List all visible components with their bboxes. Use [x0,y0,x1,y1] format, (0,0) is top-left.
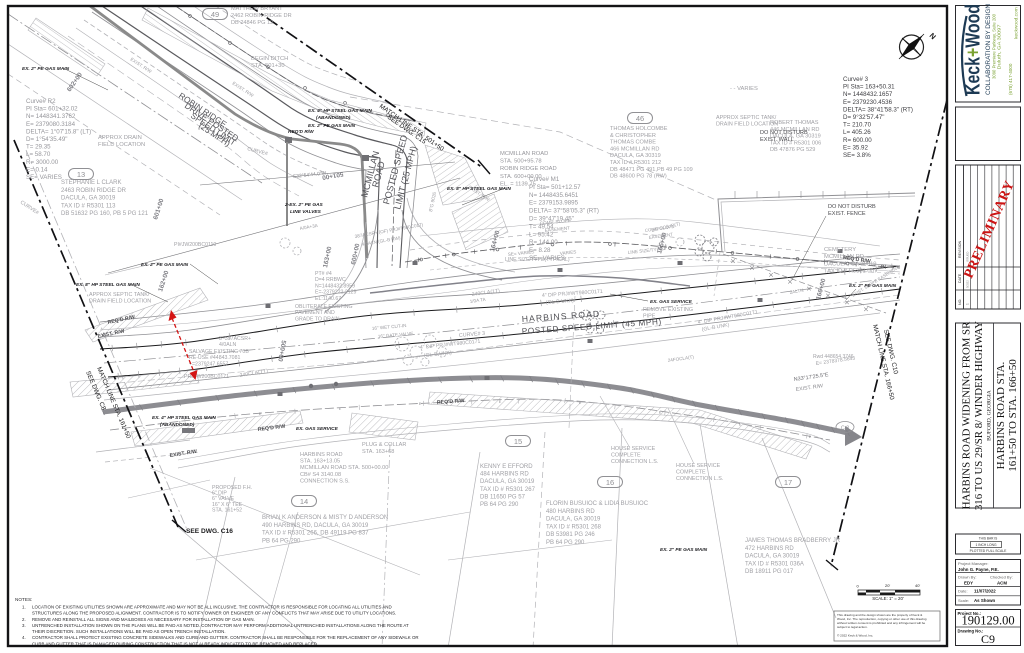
svg-text:STA. 600+00.00: STA. 600+00.00 [500,174,542,180]
svg-text:CEMETERY: CEMETERY [824,247,856,253]
svg-text:APPROX DRAIN: APPROX DRAIN [98,135,142,141]
svg-text:REMOVE EXISTING: REMOVE EXISTING [643,307,693,313]
svg-text:Duluth, GA 30097: Duluth, GA 30097 [997,24,1002,70]
svg-text:HOUSE SERVICE: HOUSE SERVICE [611,446,656,452]
svg-text:11/07/2022: 11/07/2022 [974,589,996,594]
svg-text:+=2379247.6557: +=2379247.6557 [189,361,228,367]
svg-text:TAX ID # R5301 266, DB 49119 P: TAX ID # R5301 266, DB 49119 PG 837 [262,531,369,537]
svg-text:PB 64 PG 290: PB 64 PG 290 [546,540,585,546]
svg-text:4.: 4. [22,635,26,640]
svg-text:Drawing No.:: Drawing No.: [958,629,984,634]
svg-text:14: 14 [300,497,308,506]
svg-text:STRUCTURES ALONG THE PROPOSED: STRUCTURES ALONG THE PROPOSED ALIGNMENT.… [32,611,396,616]
svg-text:DACULA, GA 30019: DACULA, GA 30019 [745,554,800,560]
svg-text:2.: 2. [22,617,26,622]
svg-text:EX. GAS SERVICE: EX. GAS SERVICE [296,426,339,432]
svg-text:ROBERT THOMAS: ROBERT THOMAS [770,120,819,126]
svg-text:TAX ID # R5301 268: TAX ID # R5301 268 [546,524,602,530]
svg-text:40': 40' [915,583,920,588]
svg-text:© 2022 Keck & Wood, Inc.: © 2022 Keck & Wood, Inc. [837,634,873,638]
svg-text:CONNECTION L.S.: CONNECTION L.S. [611,459,658,465]
svg-text:L= 95.42: L= 95.42 [529,231,554,238]
svg-text:APPROX SEPTIC TANK/: APPROX SEPTIC TANK/ [716,115,777,121]
svg-text:484 HARBINS RD: 484 HARBINS RD [480,472,529,478]
svg-text:EX. 2" PE GAS MAIN: EX. 2" PE GAS MAIN [849,283,897,289]
svg-text:R= 144.00: R= 144.00 [529,239,558,246]
svg-text:PT# #4: PT# #4 [315,271,332,277]
svg-text:PI#JW200BC0110: PI#JW200BC0110 [174,242,216,248]
svg-text:(ABANDONED): (ABANDONED) [160,422,195,428]
svg-text:THEIR DISCRETION. SUCH INSTALL: THEIR DISCRETION. SUCH INSTALLATIONS WIL… [32,629,226,634]
svg-text:3.: 3. [22,623,26,628]
svg-text:DO NOT DISTURB: DO NOT DISTURB [828,204,876,210]
svg-text:REMOVE AND REINSTALL ALL SIGNS: REMOVE AND REINSTALL ALL SIGNS AND MAILB… [32,617,255,622]
svg-text:TAX ID # R5301 212: TAX ID # R5301 212 [610,160,661,166]
svg-text:Drawn By:: Drawn By: [958,575,976,580]
svg-text:EX. 8" HP STEEL GAS MAIN: EX. 8" HP STEEL GAS MAIN [447,186,511,192]
svg-text:Curve# R2: Curve# R2 [26,98,56,105]
svg-text:472 HARBINS RD: 472 HARBINS RD [745,546,794,552]
svg-text:REVISION: REVISION [958,240,962,258]
svg-text:RE-USE #44843.7081: RE-USE #44843.7081 [189,355,240,361]
svg-text:(678) 417-4000: (678) 417-4000 [1008,63,1013,95]
svg-text:KENNY E EFFORD: KENNY E EFFORD [480,464,533,470]
svg-text:subject to legal action.: subject to legal action. [837,625,868,629]
svg-text:THIS BAR IS: THIS BAR IS [979,537,998,541]
svg-text:E= 2379230.4536: E= 2379230.4536 [843,99,893,106]
svg-text:As Shown: As Shown [974,598,996,603]
svg-text:SE= 3.8%: SE= 3.8% [843,152,871,159]
svg-text:2-EX. 2" PE GAS: 2-EX. 2" PE GAS [284,202,324,208]
svg-text:PI Sta= 501+12.57: PI Sta= 501+12.57 [529,184,581,191]
svg-text:EX. 4" HP STEEL GAS MAIN: EX. 4" HP STEEL GAS MAIN [152,415,216,421]
svg-text:(ABANDONED): (ABANDONED) [316,115,351,121]
svg-text:STA. 501+30: STA. 501+30 [251,63,285,69]
svg-text:DACULA, GA 30019: DACULA, GA 30019 [61,196,116,202]
svg-text:E= 35.92: E= 35.92 [843,144,869,151]
svg-text:John G. Payne, P.E.: John G. Payne, P.E. [958,567,999,572]
svg-text:49: 49 [211,10,219,19]
svg-text:STA. 163+13.05: STA. 163+13.05 [300,459,340,465]
svg-text:STA. 500+95.78: STA. 500+95.78 [500,159,542,165]
svg-text:TAX ID # R5301 036A: TAX ID # R5301 036A [745,561,804,567]
svg-text:EDY: EDY [964,581,973,586]
svg-text:DELTA= 1°07'15.8" (LT): DELTA= 1°07'15.8" (LT) [26,128,91,135]
svg-text:BEGIN DITCH: BEGIN DITCH [251,56,288,62]
svg-text:D= 9°32'57.47": D= 9°32'57.47" [843,114,884,121]
svg-text:CONNECTION L.S.: CONNECTION L.S. [676,476,723,482]
svg-text:THOMAS COMBE: THOMAS COMBE [610,140,656,146]
svg-text:FLORIN BUSUIOC & LIDIA BUSUIOC: FLORIN BUSUIOC & LIDIA BUSUIOC [546,501,649,507]
svg-text:EL:1140.67: EL:1140.67 [315,296,341,302]
svg-text:OBLITERATE EXISTING: OBLITERATE EXISTING [295,304,353,310]
svg-text:D= 1°54'35.49": D= 1°54'35.49" [26,136,67,143]
svg-text:LINE SIZE/TYPE(TYPICAL): LINE SIZE/TYPE(TYPICAL) [505,257,570,263]
svg-text:DELTA= 38°41'58.3" (RT): DELTA= 38°41'58.3" (RT) [843,106,913,113]
svg-text:EXIST. WALL: EXIST. WALL [760,137,794,143]
svg-text:BRIAN K ANDERSON & MISTY D AND: BRIAN K ANDERSON & MISTY D ANDERSON [262,515,388,521]
svg-text:D=4 RRBWC: D=4 RRBWC [315,277,346,283]
svg-text:CB# S4 3140.08: CB# S4 3140.08 [300,472,341,478]
svg-text:STEPHANIE L CLARK: STEPHANIE L CLARK [61,180,121,186]
svg-text:CONNECTION S.S.: CONNECTION S.S. [300,478,350,484]
svg-text:L= 58.70: L= 58.70 [26,151,51,158]
svg-text:PIPE: PIPE [643,314,656,320]
svg-text:SALVAGE EXISTING 70B: SALVAGE EXISTING 70B [189,349,249,355]
svg-text:EX. GAS SERVICE: EX. GAS SERVICE [650,299,693,305]
svg-text:HARBINS ROAD: HARBINS ROAD [300,452,343,458]
svg-text:N= 1448432.1657: N= 1448432.1657 [843,91,893,98]
svg-text:Date:: Date: [958,589,968,594]
svg-text:1 INCH LONG: 1 INCH LONG [975,543,997,547]
svg-text:R= 600.00: R= 600.00 [843,137,872,144]
svg-text:E: E [419,402,422,406]
svg-text:E= 2379080.3184: E= 2379080.3184 [26,121,76,128]
svg-text:PRJ#W200BC0171: PRJ#W200BC0171 [184,374,229,380]
svg-text:FIELD LOCATION: FIELD LOCATION [98,142,145,148]
svg-text:Curve# 3: Curve# 3 [843,76,869,83]
svg-text:480 HARBINS RD: 480 HARBINS RD [546,509,595,515]
svg-text:DRAIN FIELD LOCATION: DRAIN FIELD LOCATION [716,122,778,128]
svg-text:PB 64 PG 290: PB 64 PG 290 [480,502,519,508]
svg-text:STA. 163+68: STA. 163+68 [362,449,394,455]
svg-text:4/0ALN: 4/0ALN [219,342,237,348]
svg-text:3~397ACSR+: 3~397ACSR+ [219,336,251,342]
svg-text:STA. 161+52: STA. 161+52 [212,507,242,513]
svg-text:LINE VALVES: LINE VALVES [290,209,322,215]
svg-text:DB 47876 PG 529: DB 47876 PG 529 [770,147,815,153]
svg-text:T= 210.70: T= 210.70 [843,122,872,129]
svg-text:13: 13 [77,170,85,179]
svg-text:5/2/22: 5/2/22 [966,280,970,288]
svg-text:keckwood.com: keckwood.com [1014,7,1020,39]
svg-text:PI Sta= 601+32.02: PI Sta= 601+32.02 [26,106,78,113]
svg-text:N=1448432.8959: N=1448432.8959 [315,283,355,289]
svg-text:C-8: C-8 [841,426,849,432]
svg-text:N= 1448341.3762: N= 1448341.3762 [26,113,76,120]
svg-text:THOMAS HOLCOMBE: THOMAS HOLCOMBE [610,126,668,132]
svg-text:1: 1 [966,303,970,305]
svg-text:2462 ROBIN RIDGE DR: 2462 ROBIN RIDGE DR [231,13,292,19]
svg-text:HARBINS ROAD STA.: HARBINS ROAD STA. [995,361,1007,469]
svg-text:R= 3000.00: R= 3000.00 [26,159,59,166]
svg-text:EXIST. FENCE: EXIST. FENCE [828,211,866,217]
svg-text:APPROX SEPTIC TANK/: APPROX SEPTIC TANK/ [89,292,150,298]
svg-text:& CHRISTOPHER: & CHRISTOPHER [610,133,656,139]
svg-text:LOCATION OF EXISTING UTILITIES: LOCATION OF EXISTING UTILITIES SHOWN ARE… [32,605,392,610]
svg-text:PI Sta= 163+50.31: PI Sta= 163+50.31 [843,84,895,91]
svg-text:316 TO US 29/SR 8/ WINDER HIGH: 316 TO US 29/SR 8/ WINDER HIGHWAY [973,321,985,510]
svg-text:PB 64 PG 290: PB 64 PG 290 [262,538,301,544]
svg-text:DB 48600 PG 78 (RW): DB 48600 PG 78 (RW) [610,174,667,180]
svg-text:DB 24846 PG 12: DB 24846 PG 12 [231,20,273,26]
svg-text:HOUSE SERVICE: HOUSE SERVICE [676,463,721,469]
svg-text:DACULA, GA 30019: DACULA, GA 30019 [546,517,601,523]
svg-text:490 HARBINS RD, DACULA, GA 300: 490 HARBINS RD, DACULA, GA 30019 [262,523,369,529]
svg-text:DB 51632 PG 160, PB 5 PG 121: DB 51632 PG 160, PB 5 PG 121 [61,211,149,217]
svg-text:TAX ID # R5301 113: TAX ID # R5301 113 [61,203,116,209]
svg-text:MCMILLAN ROAD STA. 500+00.00: MCMILLAN ROAD STA. 500+00.00 [300,465,388,471]
svg-text:DB 11650 PG 57: DB 11650 PG 57 [480,494,526,500]
svg-text:MCMILLAN ROAD: MCMILLAN ROAD [500,151,548,157]
svg-text:C9: C9 [981,632,995,646]
svg-text:EX. 2" PE GAS MAIN: EX. 2" PE GAS MAIN [22,66,70,72]
svg-text:DB 53981 PG 246: DB 53981 PG 246 [546,532,595,538]
svg-text:16: 16 [606,478,614,487]
svg-text:190129.00: 190129.00 [961,614,1014,628]
svg-text:E= 2379153.9895: E= 2379153.9895 [529,200,579,207]
svg-text:DB 48471 PG 491,PB 49 PG 109: DB 48471 PG 491,PB 49 PG 109 [610,167,693,173]
svg-text:Project Manager:: Project Manager: [958,561,988,566]
svg-text:20': 20' [885,583,890,588]
svg-text:Checked By:: Checked By: [990,575,1013,580]
svg-text:466 MCMILLAN RD: 466 MCMILLAN RD [610,146,659,152]
svg-text:DRAIN FIELD LOCATION: DRAIN FIELD LOCATION [89,299,151,305]
svg-text:HARBINS ROAD WIDENING FROM SR: HARBINS ROAD WIDENING FROM SR [961,321,973,509]
svg-text:DO NOT DISTURB: DO NOT DISTURB [760,130,808,136]
svg-text:PLOTTED FULL SCALE: PLOTTED FULL SCALE [970,549,1008,553]
svg-text:17: 17 [784,478,792,487]
svg-text:SE= VARIES: SE= VARIES [26,174,62,181]
svg-text:UNTRENCHED INSTALLATION SHOWN: UNTRENCHED INSTALLATION SHOWN ON THE PLA… [32,623,409,628]
svg-text:T= 29.35: T= 29.35 [26,144,51,151]
svg-text:EX. 2" PE GAS MAIN: EX. 2" PE GAS MAIN [141,262,189,268]
svg-text:CONTRACTOR SHALL PROTECT EXIST: CONTRACTOR SHALL PROTECT EXISTING CONCRE… [32,635,419,640]
svg-text:1.: 1. [22,605,26,610]
svg-text:D= 39°47'19.45": D= 39°47'19.45" [529,216,574,223]
svg-text:EX. 2" PE GAS MAIN: EX. 2" PE GAS MAIN [660,547,708,553]
svg-text:46: 46 [636,114,644,123]
svg-text:NOTES:: NOTES: [15,597,32,602]
svg-text:161+50 TO STA. 166+50: 161+50 TO STA. 166+50 [1007,359,1019,472]
svg-text:TAX ID # R5301 007: TAX ID # R5301 007 [824,269,877,275]
svg-text:PAVEMENT AND: PAVEMENT AND [295,310,335,316]
svg-text:BUFORD, GEORGIA: BUFORD, GEORGIA [987,390,993,441]
svg-text:PLUG & COLLAR: PLUG & COLLAR [362,442,406,448]
svg-text:COMPLETE: COMPLETE [676,470,706,476]
svg-text:T= 49.54: T= 49.54 [529,223,554,230]
svg-text:Scale:: Scale: [958,598,969,603]
svg-text:E= 8.28: E= 8.28 [529,247,551,254]
svg-text:E: E [809,435,812,439]
svg-text:- - VARIES: - - VARIES [730,86,758,92]
svg-text:DACULA, GA 30019: DACULA, GA 30019 [480,479,535,485]
svg-text:DB 18911 PG 017: DB 18911 PG 017 [745,569,794,575]
svg-text:E= 0.14: E= 0.14 [26,166,48,173]
svg-text:EX. 2" PE GAS MAIN: EX. 2" PE GAS MAIN [308,123,356,129]
svg-text:SEE DWG. C16: SEE DWG. C16 [186,528,233,535]
svg-text:NO.: NO. [958,299,962,305]
svg-text:E: E [339,407,342,411]
svg-text:E=-2379222.2129: E=-2379222.2129 [315,290,357,296]
svg-text:COMPLETE: COMPLETE [611,453,641,459]
svg-text:REQ'D R/W: REQ'D R/W [288,129,314,135]
svg-text:EX. 4" HP STEEL GAS MAIN: EX. 4" HP STEEL GAS MAIN [308,108,372,114]
svg-text:2463 ROBIN RIDGE DR: 2463 ROBIN RIDGE DR [61,188,127,194]
svg-text:JAMES THOMAS BRADBERRY JR: JAMES THOMAS BRADBERRY JR [745,538,841,544]
svg-text:SCALE: 1" = 20': SCALE: 1" = 20' [872,596,904,601]
svg-text:15: 15 [514,437,522,446]
svg-text:DACULA, GA 30319: DACULA, GA 30319 [610,153,661,159]
svg-text:ACM: ACM [997,581,1007,586]
svg-text:E: E [259,412,262,416]
svg-text:GRADE TO DRAIN: GRADE TO DRAIN [295,316,340,322]
svg-text:TAX ID # R5301 267: TAX ID # R5301 267 [480,487,536,493]
svg-text:ROBIN RIDGE ROAD: ROBIN RIDGE ROAD [500,166,557,172]
svg-text:EX. 8" HP STEEL GAS MAIN: EX. 8" HP STEEL GAS MAIN [76,282,140,288]
svg-text:N= 1448435.6451: N= 1448435.6451 [529,192,579,199]
svg-text:L= 405.26: L= 405.26 [843,129,871,136]
svg-text:DELTA= 37°58'05.3" (RT): DELTA= 37°58'05.3" (RT) [529,208,599,215]
